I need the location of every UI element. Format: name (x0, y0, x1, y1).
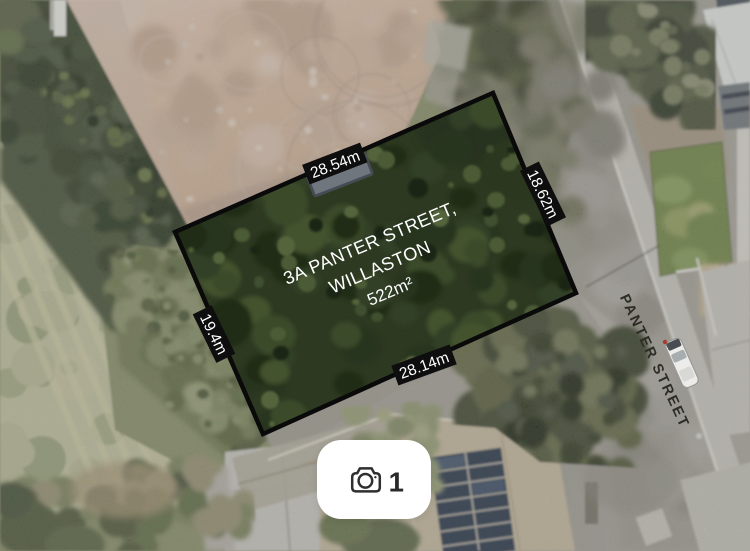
svg-text:1: 1 (389, 466, 404, 497)
